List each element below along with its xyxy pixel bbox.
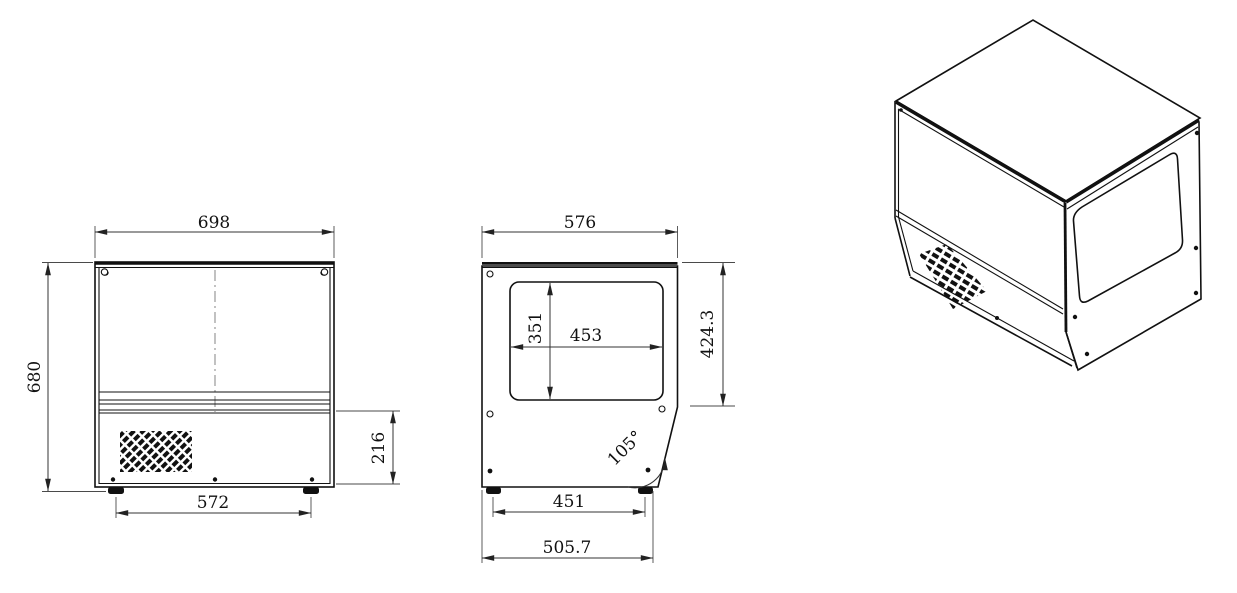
front-foot-left <box>108 487 124 494</box>
side-base-depth-label: 505.7 <box>543 538 592 558</box>
side-upper-height-dimension: 424.3 <box>682 263 735 407</box>
side-screw-mid-right <box>659 406 665 412</box>
front-foot-span-dimension: 572 <box>116 493 311 518</box>
front-height-label: 680 <box>25 361 45 393</box>
front-foot-right <box>303 487 319 494</box>
front-view: 698 680 216 572 <box>25 213 400 518</box>
side-window-height-dimension: 351 <box>526 283 550 399</box>
side-window-height-label: 351 <box>526 312 546 344</box>
side-foot-left <box>486 487 501 494</box>
iso-window <box>1073 153 1182 302</box>
side-window-width-label: 453 <box>570 326 602 346</box>
iso-vent-grille <box>919 244 987 309</box>
side-foot-span-label: 451 <box>553 492 585 512</box>
front-shelf-band <box>99 392 330 413</box>
side-screw-mid-left <box>487 411 493 417</box>
side-depth-dimension: 576 <box>482 213 678 258</box>
side-foot-right <box>638 487 653 494</box>
front-width-label: 698 <box>198 213 230 233</box>
front-foot-span-label: 572 <box>197 493 229 513</box>
isometric-view <box>895 20 1201 370</box>
side-outline <box>482 266 678 487</box>
side-depth-label: 576 <box>564 213 596 233</box>
iso-chamfer-edge <box>895 218 910 276</box>
side-foot-span-dimension: 451 <box>493 492 645 517</box>
front-corner-screw-left <box>101 269 108 275</box>
side-corner-angle-label: 105° <box>604 427 647 470</box>
iso-top-face <box>896 20 1200 201</box>
side-screw-top-left <box>487 271 493 277</box>
front-vent-grille <box>120 431 192 472</box>
side-upper-height-label: 424.3 <box>698 310 718 359</box>
front-corner-screw-right <box>321 269 328 275</box>
front-base-height-label: 216 <box>369 432 389 464</box>
side-view: 576 453 351 424.3 105° 451 <box>482 213 735 563</box>
technical-drawing-canvas: 698 680 216 572 <box>0 0 1237 593</box>
front-base-height-dimension: 216 <box>336 411 400 484</box>
front-height-dimension: 680 <box>25 263 106 492</box>
front-width-dimension: 698 <box>95 213 334 258</box>
side-corner-angle-dimension: 105° <box>604 427 665 488</box>
